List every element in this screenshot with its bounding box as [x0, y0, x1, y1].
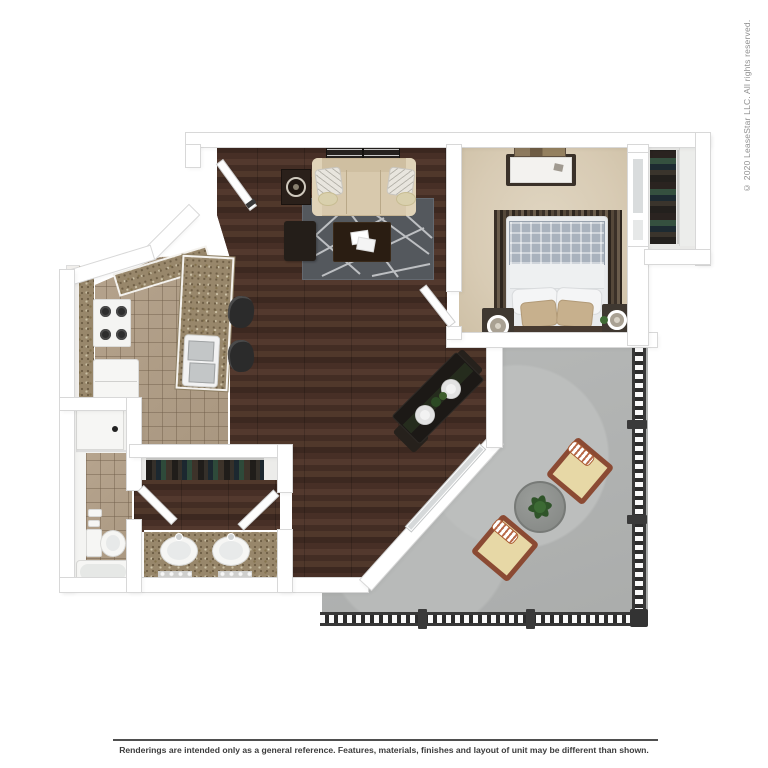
wall-living-bedroom-upper: [447, 145, 461, 291]
vanity-sink-right-basin: [219, 541, 243, 560]
nightstand-plant: [600, 316, 608, 324]
sofa-seat-seam-2: [380, 170, 381, 214]
stove-burner-3: [100, 329, 111, 340]
patio-railing-bottom: [320, 612, 646, 626]
closet-hanging-clothes: [650, 150, 676, 244]
bath-closet-clothes: [146, 458, 264, 480]
patio-plant-leaves: [524, 491, 556, 523]
railing-post-1: [627, 420, 647, 429]
kitchen-sink-basin-bottom: [188, 362, 215, 383]
bed-accent-pillow-right: [557, 300, 593, 327]
wall-bath-right-upper: [278, 445, 292, 492]
ottoman: [284, 221, 316, 261]
bed-accent-pillow-left: [521, 300, 557, 327]
floorplan-rendering: © 2020 LeaseStar LLC. All rights reserve…: [0, 0, 768, 768]
wall-mid-vertical-upper: [127, 398, 141, 490]
towel-holder-2: [88, 520, 100, 527]
sofa-cushion-disc-right: [396, 192, 416, 206]
stove-burner-2: [116, 306, 127, 317]
wall-mid-vertical-lower: [127, 520, 141, 592]
refrigerator-seam: [95, 381, 137, 382]
vanity-faucet-left: [176, 534, 182, 540]
bed-blanket: [510, 222, 604, 264]
barstool-2: [227, 339, 255, 373]
sofa-cushion-disc-left: [318, 192, 338, 206]
stove: [93, 299, 131, 347]
railing-post-3: [418, 609, 427, 629]
closet-shelf: [679, 148, 696, 246]
railing-post-2: [627, 515, 647, 524]
wall-left-upper: [186, 145, 200, 167]
vanity-knobs-right: [218, 571, 252, 577]
railing-post-4: [526, 609, 535, 629]
dinner-plate-2: [416, 406, 434, 424]
wall-shelf-right: [364, 147, 399, 158]
kitchen-counter-left: [79, 266, 94, 400]
wall-closet-bottom: [645, 250, 710, 264]
railing-corner-post: [630, 609, 648, 627]
wall-patio-vertical: [487, 345, 502, 447]
vanity-faucet-right: [228, 534, 234, 540]
bed-duvet-fold: [510, 264, 604, 289]
sofa-seat-seam-1: [346, 170, 347, 214]
wall-bath-closet-top: [130, 445, 292, 457]
centerpiece-greens-2: [439, 392, 447, 400]
wall-closet-right: [696, 133, 710, 265]
copyright-text: © 2020 LeaseStar LLC. All rights reserve…: [742, 8, 752, 193]
kitchen-sink-basin-top: [187, 340, 214, 361]
wall-living-bedroom-lower: [447, 327, 461, 339]
dresser-top: [510, 157, 572, 183]
vanity-sink-left-basin: [167, 541, 191, 560]
bedroom-window-panel: [631, 218, 645, 242]
stove-burner-1: [100, 306, 111, 317]
end-table-tray-center: [293, 184, 299, 190]
toilet-bowl-inner: [106, 535, 120, 551]
laundry-shelf-edge: [76, 450, 126, 452]
wall-shelf-left: [327, 147, 362, 158]
stove-burner-4: [116, 329, 127, 340]
patio-railing-right: [632, 347, 646, 625]
patio-plant: [524, 491, 556, 523]
washer-knob: [112, 426, 118, 432]
towel-holder-1: [88, 509, 102, 517]
wall-bottom: [60, 578, 368, 592]
lamp-right: [607, 310, 627, 330]
wall-bedroom-bottom: [447, 333, 657, 347]
disclaimer-text: Renderings are intended only as a genera…: [0, 745, 768, 755]
disclaimer-divider: [113, 739, 658, 741]
bedroom-window-glass: [631, 157, 645, 215]
wall-bath-right-lower: [278, 530, 292, 592]
wall-left-lower: [60, 270, 74, 592]
vanity-knobs-left: [158, 571, 192, 577]
